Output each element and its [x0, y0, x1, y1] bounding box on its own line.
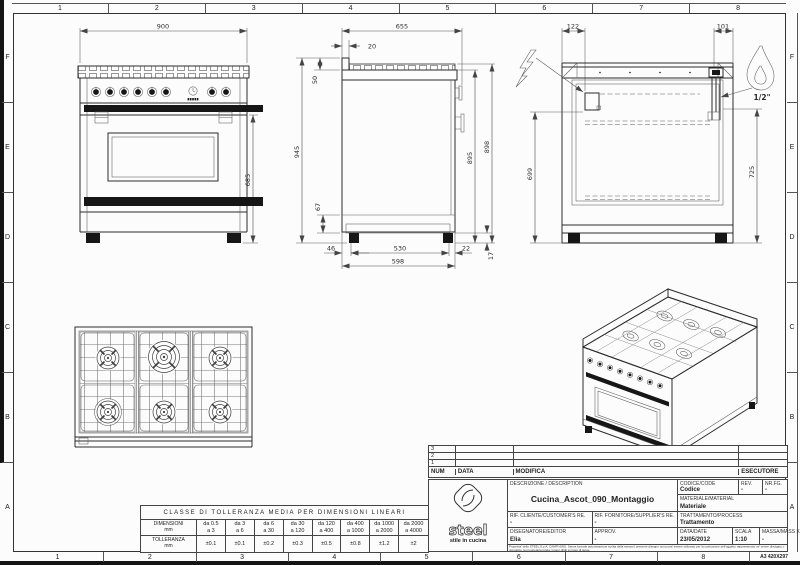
legal-notice-text: Proprieta' dello STEEL S.p.A. CAMPI (MO)…	[508, 545, 787, 551]
dim-base-depth: 598	[392, 258, 404, 266]
date-cell: DATA/DATE 23/05/2012	[678, 528, 733, 544]
dim-foot-span: 530	[394, 245, 406, 253]
dim-electric-height: 699	[526, 168, 534, 180]
scale-cell: SCALA 1:10	[733, 528, 760, 544]
rev-header-num: NUM	[429, 469, 456, 475]
dim-front-height: 685	[244, 174, 252, 186]
control-knobs	[91, 87, 230, 101]
title-block: steel stile in cucina DESCRIZIONE / DESC…	[428, 479, 788, 552]
gas-inlet	[708, 68, 723, 120]
dim-gas-offset: 101	[717, 23, 729, 31]
svg-text:steel: steel	[449, 523, 488, 538]
dim-front-foot: 22	[462, 245, 470, 253]
drafter-cell: DISEGNATORE/EDITOR Elia	[508, 528, 593, 544]
drawing-title: Cucina_Ascot_090_Montaggio	[508, 494, 677, 504]
flame-icon	[747, 46, 774, 90]
tolerance-dim-label: DIMENSIONI mm	[141, 520, 197, 536]
steel-logo-icon	[446, 482, 490, 522]
side-view: 655 20 50 945 67 895 898 46 530 22 598	[293, 23, 495, 270]
front-view: 900 685	[78, 23, 263, 244]
company-logo: steel stile in cucina	[429, 480, 508, 551]
revision-table: 3 2 1 NUM DATA MODIFICA ESECUTORE	[428, 445, 788, 478]
mass-cell: MASSA/MASS Kg -	[760, 528, 787, 544]
backsplash-profile	[342, 58, 349, 70]
dim-back-offset: 20	[368, 43, 376, 51]
dim-electric-offset: 122	[567, 23, 579, 31]
dim-plinth-height: 67	[314, 203, 322, 211]
tolerance-table: CLASSE DI TOLLERANZA MEDIA PER DIMENSION…	[140, 505, 429, 553]
dim-total-height: 945	[293, 146, 301, 158]
sheet-no-cell: NR.FG. -	[763, 480, 787, 494]
oven-handle-bar	[84, 105, 263, 112]
gas-thread-label: 1/2"	[753, 93, 770, 102]
oven-window	[108, 133, 218, 181]
dim-side-depth: 655	[396, 23, 408, 31]
isometric-view	[583, 289, 757, 461]
code-cell: CODICE/CODE Codice	[678, 480, 739, 494]
cooktop-plan-view	[75, 327, 252, 447]
customer-ref-cell: RIF. CLIENTE/CUSTOMER'S RE. -	[508, 512, 593, 528]
treatment-cell: TRATTAMENTO/PROCESS Trattamento	[678, 512, 787, 528]
dim-front-width: 900	[157, 23, 169, 31]
rev-header-date: DATA	[456, 469, 514, 475]
rev-header-executor: ESECUTORE	[739, 469, 787, 475]
rev-cell: REV. -	[739, 480, 763, 494]
dim-body-height: 895	[466, 152, 474, 164]
dim-rear-foot: 46	[327, 245, 335, 253]
material-cell: MATERIALE/MATERIAL Materiale	[678, 495, 787, 512]
steel-logo-word: steel	[432, 523, 504, 538]
logo-tagline: stile in cucina	[450, 538, 486, 544]
rev-header-modification: MODIFICA	[514, 469, 740, 475]
plinth-band	[84, 197, 263, 206]
approval-cell: APPROV. -	[593, 528, 678, 544]
description-cell: DESCRIZIONE / DESCRIPTION Cucina_Ascot_0…	[508, 480, 677, 512]
drawing-sheet: 1 2 3 4 5 6 7 8 1 2 3 4 5 6 7 8 A3 420X2…	[0, 0, 800, 565]
dim-splash-height: 50	[311, 76, 319, 84]
lightning-icon	[516, 50, 536, 87]
rear-view: 122 101 699 725	[516, 23, 774, 244]
dim-gas-height: 725	[748, 166, 756, 178]
dim-foot-height: 17	[487, 252, 495, 260]
tolerance-table-title: CLASSE DI TOLLERANZA MEDIA PER DIMENSION…	[141, 506, 428, 520]
dim-grate-height: 898	[483, 141, 491, 153]
supplier-ref-cell: RIF. FORNITORE/SUPPLIER'S RE. -	[593, 512, 678, 528]
legal-notice-cell: Proprieta' dello STEEL S.p.A. CAMPI (MO)…	[508, 544, 787, 551]
tolerance-tol-label: TOLLERANZA mm	[141, 536, 197, 552]
clock-icon	[188, 87, 199, 101]
